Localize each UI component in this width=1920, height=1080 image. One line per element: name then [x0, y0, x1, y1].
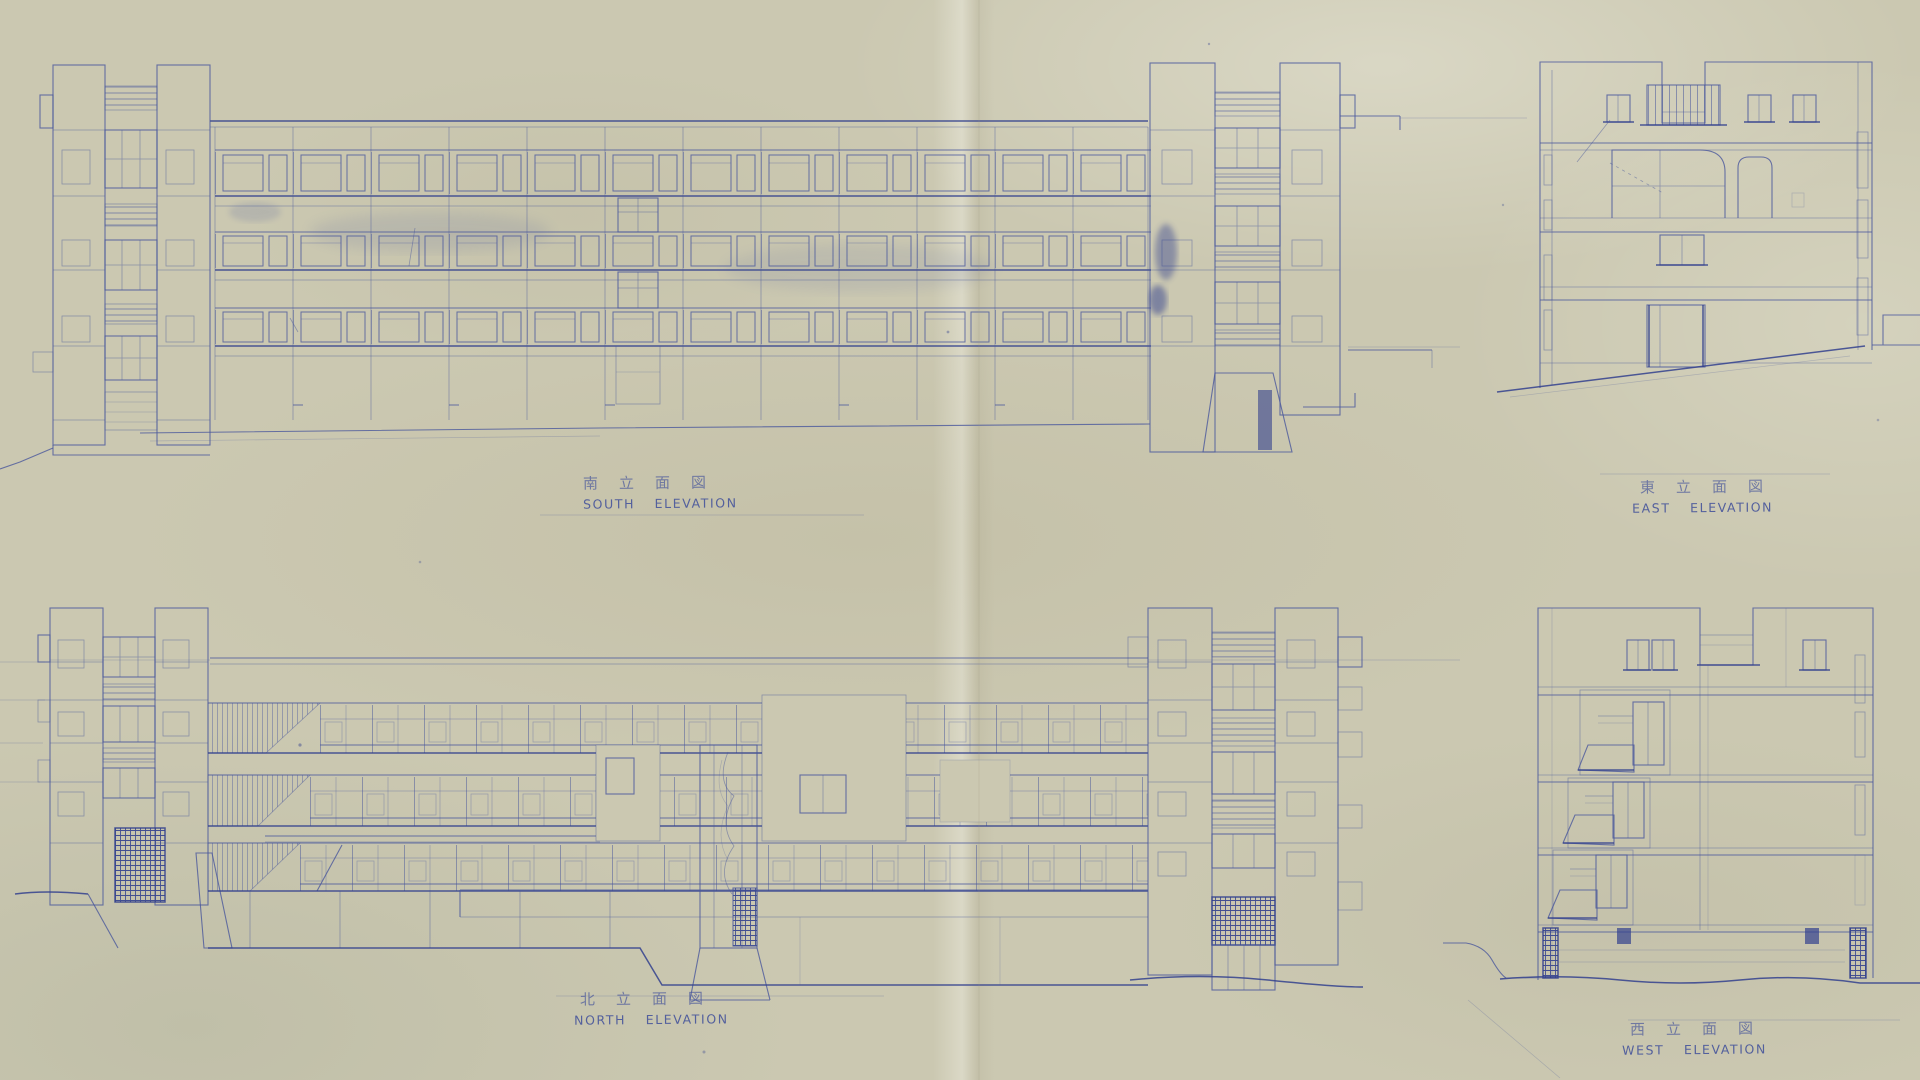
south-elevation-drawing [0, 63, 1527, 469]
west-elevation-label: 西立面図 WEST ELEVATION [1630, 1017, 1774, 1057]
north-window-band-3 [208, 843, 1148, 891]
east-elevation-kanji: 東立面図 [1640, 475, 1784, 497]
north-roof-line [50, 658, 1460, 664]
south-left-stair-tower [33, 65, 210, 455]
south-elevation-kanji: 南立面図 [583, 471, 738, 493]
south-ground-line [0, 424, 1150, 469]
west-balcony-unit-1 [1578, 690, 1670, 775]
east-top-windows [1603, 85, 1820, 125]
west-roof-notch-rail [1697, 635, 1760, 665]
west-elevation-kanji: 西立面図 [1630, 1017, 1774, 1039]
elevation-drawings-canvas [0, 0, 1920, 1080]
west-balcony-unit-2 [1563, 778, 1650, 848]
west-base-piers [1543, 928, 1866, 978]
north-right-stair-tower [1128, 608, 1363, 990]
north-elevation-label: 北立面図 NORTH ELEVATION [580, 987, 729, 1027]
east-elevation-title: EAST ELEVATION [1632, 499, 1784, 515]
north-left-stair-tower [15, 608, 232, 948]
south-elevation-title: SOUTH ELEVATION [583, 495, 738, 511]
north-base [208, 890, 1148, 985]
north-elevation-kanji: 北立面図 [580, 987, 729, 1009]
east-elevation-drawing [1497, 62, 1920, 397]
north-elevation-drawing [0, 608, 1545, 1000]
north-window-band-1 [208, 703, 1148, 753]
west-outline [1538, 608, 1873, 980]
east-floor-lines [1540, 143, 1872, 363]
south-elevation-label: 南立面図 SOUTH ELEVATION [583, 471, 738, 511]
north-terrain-right [1443, 943, 1545, 978]
south-parapet [210, 116, 1527, 130]
west-side-slots [1855, 655, 1865, 905]
east-elevation-label: 東立面図 EAST ELEVATION [1640, 475, 1784, 515]
west-elevation-title: WEST ELEVATION [1622, 1041, 1774, 1057]
west-balcony-unit-3 [1548, 850, 1633, 925]
west-floor-lines [1538, 687, 1873, 932]
south-right-stair-tower [1150, 63, 1460, 452]
south-center-stair-bay [616, 198, 660, 404]
east-ground-line [1497, 315, 1920, 397]
west-elevation-drawing [1468, 608, 1920, 1078]
blueprint-sheet: 南立面図 SOUTH ELEVATION 東立面図 EAST ELEVATION… [0, 0, 1920, 1080]
east-side-slots [1544, 132, 1868, 350]
north-elevation-title: NORTH ELEVATION [574, 1011, 729, 1027]
east-interior-detail [1577, 120, 1804, 367]
